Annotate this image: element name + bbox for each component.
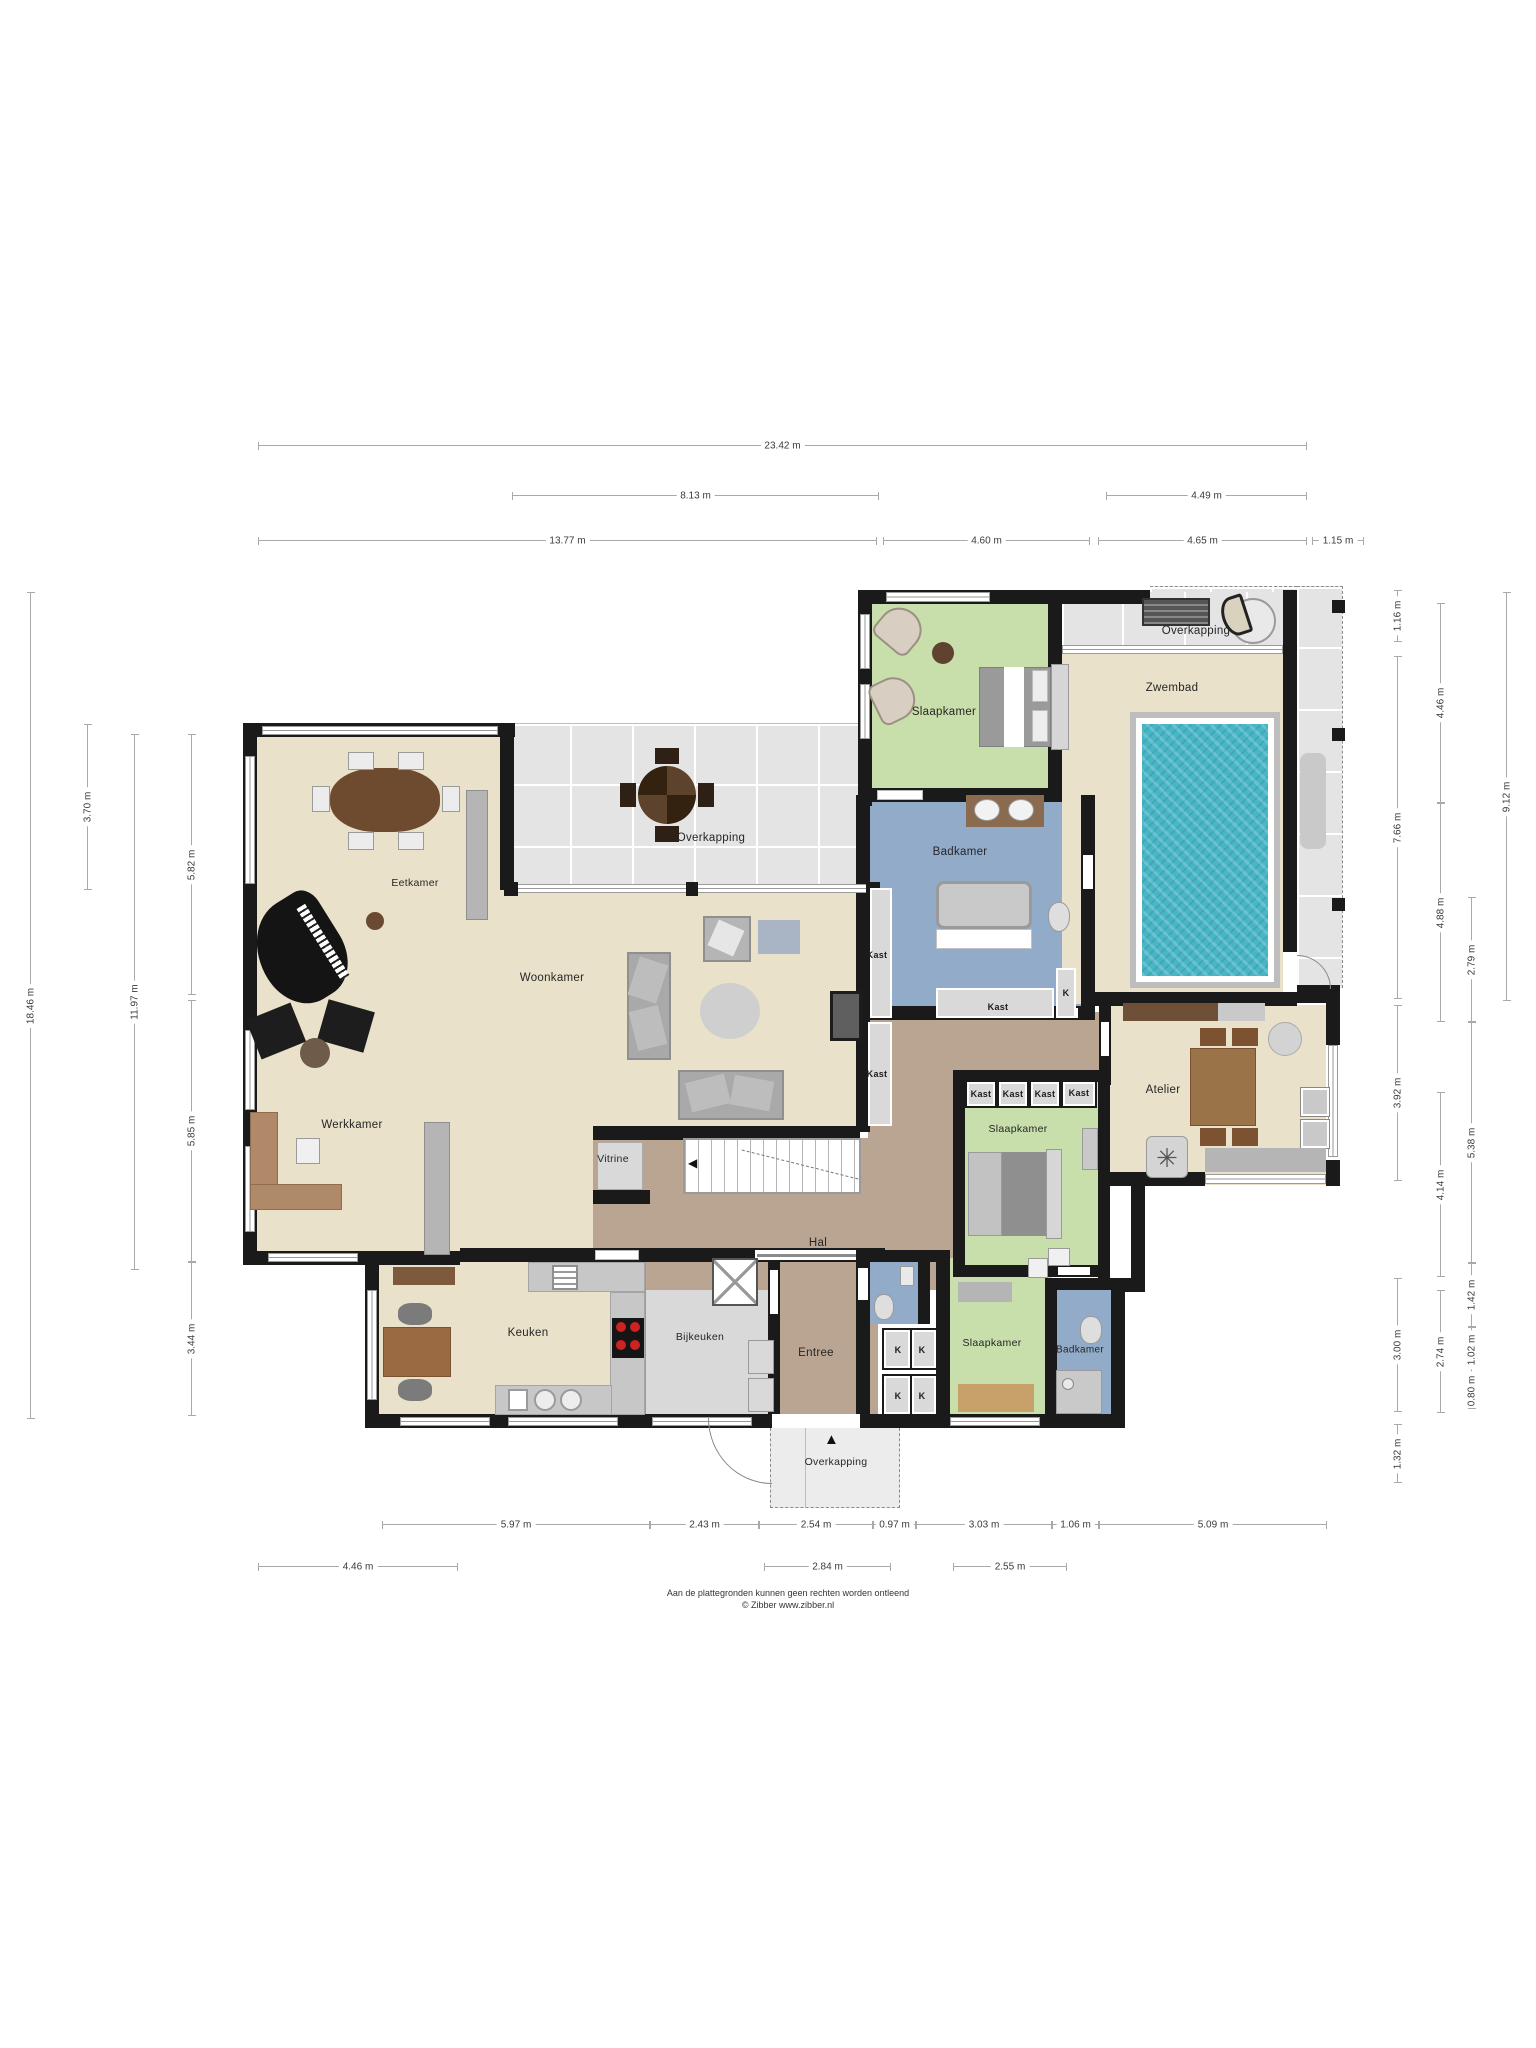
dimension-vertical: 5.85 m — [191, 1000, 192, 1262]
window-keuken-left — [367, 1290, 377, 1400]
pillar-patio-2 — [1332, 728, 1345, 741]
dimension-vertical: 4.14 m — [1440, 1092, 1441, 1277]
room-label: Keuken — [508, 1327, 549, 1339]
wall-poolroom-right — [1283, 590, 1297, 955]
sink-basin — [534, 1389, 556, 1411]
wall-atelier-corner-se — [1326, 1160, 1340, 1186]
kitchen-table — [383, 1327, 451, 1377]
patio-table — [638, 766, 696, 824]
dimension-label: 23.42 m — [760, 441, 804, 452]
wall-badkamer-right — [1081, 795, 1095, 1020]
footer-disclaimer: Aan de plattegronden kunnen geen rechten… — [667, 1588, 909, 1598]
dimension-horizontal: 5.09 m — [1099, 1524, 1327, 1525]
closet-label: Kast — [1069, 1088, 1090, 1098]
window-slaapkamer-left1 — [860, 614, 870, 669]
dimension-horizontal: 4.49 m — [1106, 495, 1307, 496]
atelier-sideboard-wood — [1123, 1003, 1218, 1021]
room-label: Overkapping — [1162, 625, 1231, 637]
fireplace — [830, 991, 862, 1041]
closet-label: K — [895, 1345, 902, 1355]
rug-blue — [758, 920, 800, 954]
dimension-vertical: 1.42 m — [1471, 1263, 1472, 1327]
atelier-chair — [1232, 1128, 1258, 1146]
atelier-chair — [1200, 1028, 1226, 1046]
toilet-wc — [874, 1294, 894, 1320]
room-label: Overkapping — [677, 832, 746, 844]
atelier-chair — [1200, 1128, 1226, 1146]
dimension-label: 0.80 m — [1467, 1372, 1478, 1411]
dimension-label: 7.66 m — [1393, 808, 1404, 847]
dimension-label: 1.02 m — [1467, 1331, 1478, 1370]
room-label: Badkamer — [933, 846, 988, 858]
dimension-vertical: 3.44 m — [191, 1262, 192, 1416]
entrance-arrow: ▲ — [824, 1432, 839, 1447]
window-eetkamer-left — [245, 756, 255, 884]
toilet-top — [1048, 902, 1070, 932]
floor-woonkamer-extension — [455, 1132, 593, 1252]
sliding-door-hal — [757, 1254, 865, 1257]
werkkamer-cabinet — [424, 1122, 450, 1255]
floorplan-canvas: ◀ — [0, 0, 1536, 2048]
burner — [616, 1340, 626, 1350]
wall-badkamerbottom-top — [1045, 1278, 1115, 1290]
post-glass-1 — [504, 882, 518, 896]
door-keuken — [595, 1250, 639, 1260]
dining-chair — [442, 786, 460, 812]
pillar-patio-3 — [1332, 898, 1345, 911]
dimension-horizontal: 0.97 m — [873, 1524, 916, 1525]
atelier-sideboard-grey — [1218, 1003, 1265, 1021]
front-door-arc — [708, 1418, 772, 1484]
dimension-label: 18.46 m — [26, 983, 37, 1027]
dimension-label: 1.32 m — [1393, 1434, 1404, 1473]
patio-chair — [698, 783, 714, 807]
window-poolroom-top — [1062, 645, 1283, 654]
closet-label: K — [919, 1391, 926, 1401]
dimension-label: 5.09 m — [1194, 1520, 1233, 1531]
bed-top-sheet — [1004, 667, 1024, 747]
bijkeuken-appliance — [748, 1340, 774, 1374]
dimension-vertical: 9.12 m — [1506, 592, 1507, 1001]
bed-mid-duvet — [1002, 1152, 1046, 1236]
overkapping-entree-divider — [805, 1428, 806, 1508]
room-label: Eetkamer — [391, 877, 438, 889]
dimension-vertical: 4.46 m — [1440, 603, 1441, 803]
dimension-vertical: 0.80 m — [1471, 1373, 1472, 1409]
door-bijkeuken — [770, 1270, 778, 1314]
kitchen-counter-top — [528, 1262, 645, 1292]
atelier-fridge — [1301, 1120, 1329, 1148]
sink-basin — [560, 1389, 582, 1411]
dimension-horizontal: 4.65 m — [1098, 540, 1307, 541]
kitchen-chair — [398, 1379, 432, 1401]
rug-bottom-bedroom — [958, 1384, 1034, 1412]
post-glass-2 — [686, 882, 698, 896]
room-label: Hal — [809, 1237, 827, 1249]
dimension-vertical: 5.38 m — [1471, 1022, 1472, 1263]
wall-slaapkamermid-right — [1098, 1070, 1110, 1290]
dining-chair — [348, 752, 374, 770]
rug-round — [700, 983, 760, 1039]
burner — [630, 1322, 640, 1332]
closet-label: K — [1063, 988, 1070, 998]
staircase — [683, 1138, 861, 1194]
bedside-table-round — [932, 642, 954, 664]
wall-vitrine-bottom — [593, 1190, 650, 1204]
window-keuken-bottom2 — [508, 1417, 618, 1426]
room-label: Vitrine — [597, 1153, 629, 1165]
dimension-label: 2.84 m — [808, 1562, 847, 1573]
dimension-vertical: 2.79 m — [1471, 897, 1472, 1022]
burner — [616, 1322, 626, 1332]
desk-chair — [296, 1138, 320, 1164]
dishwasher-icon — [508, 1389, 528, 1411]
dimension-label: 4.14 m — [1436, 1165, 1447, 1204]
dining-chair — [398, 832, 424, 850]
patio-chair — [655, 826, 679, 842]
dimension-horizontal: 8.13 m — [512, 495, 879, 496]
dimension-vertical: 7.66 m — [1397, 656, 1398, 999]
dimension-label: 3.70 m — [83, 788, 94, 827]
room-label: Slaapkamer — [912, 706, 976, 718]
dimension-label: 4.46 m — [339, 1562, 378, 1573]
dimension-label: 3.00 m — [1393, 1326, 1404, 1365]
floor-overkapping-topright-dashedtop — [1150, 586, 1297, 592]
room-label: Zwembad — [1146, 682, 1199, 694]
bathtub — [936, 881, 1032, 929]
dimension-vertical: 3.70 m — [87, 724, 88, 890]
dimension-label: 2.74 m — [1436, 1332, 1447, 1371]
wall-atelier-right-top — [1326, 1000, 1340, 1045]
room-label: Atelier — [1146, 1084, 1181, 1096]
dimension-vertical: 1.02 m — [1471, 1327, 1472, 1373]
dimension-label: 2.43 m — [685, 1520, 724, 1531]
dimension-vertical: 5.82 m — [191, 734, 192, 995]
bed-mid-mattress — [968, 1152, 1002, 1236]
dimension-label: 5.97 m — [497, 1520, 536, 1531]
room-label: Overkapping — [805, 1456, 868, 1468]
room-label: Entree — [798, 1347, 834, 1359]
dimension-label: 1.16 m — [1393, 597, 1404, 636]
dimension-horizontal: 23.42 m — [258, 445, 1307, 446]
window-atelier-right — [1328, 1045, 1338, 1157]
atelier-counter — [1205, 1148, 1326, 1172]
bed-mid-headboard — [1046, 1149, 1062, 1239]
dimension-label: 11.97 m — [130, 980, 141, 1023]
dimension-horizontal: 5.97 m — [382, 1524, 650, 1525]
closet-label: Kast — [988, 1002, 1009, 1012]
door-badkamer-top — [1083, 855, 1093, 889]
atelier-fridge — [1301, 1088, 1329, 1116]
closet-label: K — [895, 1391, 902, 1401]
vanity-sink — [974, 799, 1000, 821]
dimension-label: 3.03 m — [965, 1520, 1004, 1531]
dimension-label: 3.92 m — [1393, 1074, 1404, 1113]
footer-copyright: © Zibber www.zibber.nl — [742, 1600, 834, 1610]
door-slaapkamer-tr — [877, 790, 923, 800]
wall-slaapkamermid-left — [953, 1070, 965, 1277]
pool-door-gap — [1283, 952, 1297, 992]
dimension-label: 0.97 m — [875, 1520, 914, 1531]
ac-unit: ✳ — [1146, 1136, 1188, 1178]
shower-bottom-badkamer — [1056, 1370, 1102, 1414]
dimension-horizontal: 1.15 m — [1312, 540, 1364, 541]
bbq-grill — [1142, 598, 1210, 626]
room-label: Bijkeuken — [676, 1331, 724, 1343]
dimension-vertical: 1.32 m — [1397, 1424, 1398, 1483]
pool-water — [1142, 724, 1268, 976]
dimension-vertical: 3.00 m — [1397, 1278, 1398, 1412]
door-atelier — [1101, 1022, 1109, 1056]
lounger-patio — [1300, 753, 1326, 849]
desk-l-horizontal — [250, 1184, 342, 1210]
pillar-patio-1 — [1332, 600, 1345, 613]
dimension-label: 13.77 m — [545, 536, 589, 547]
wall-eetkamer-overkapping — [500, 737, 514, 890]
bijkeuken-appliance — [748, 1378, 774, 1412]
dimension-label: 3.44 m — [187, 1320, 198, 1359]
wall-slaapkamermid-top — [953, 1070, 1105, 1082]
closet-label: Kast — [1003, 1089, 1024, 1099]
dimension-label: 5.82 m — [187, 845, 198, 884]
dimension-label: 9.12 m — [1502, 777, 1513, 816]
room-label: Slaapkamer — [988, 1123, 1047, 1135]
closet-label: Kast — [971, 1089, 992, 1099]
closet-label: Kast — [867, 1069, 888, 1079]
dimension-horizontal: 2.84 m — [764, 1566, 891, 1567]
window-werkkamer-bottom — [268, 1253, 358, 1262]
side-table-round — [300, 1038, 330, 1068]
dimension-label: 2.55 m — [991, 1562, 1030, 1573]
window-atelier-bottom — [1205, 1174, 1326, 1184]
closet-label: Kast — [867, 950, 888, 960]
kitchen-chair — [398, 1303, 432, 1325]
front-door-gap — [772, 1414, 860, 1428]
toilet-bottom-badkamer — [1080, 1316, 1102, 1344]
sideboard-eetkamer — [466, 790, 488, 920]
dimension-label: 1.42 m — [1467, 1276, 1478, 1315]
dimension-horizontal: 4.60 m — [883, 540, 1090, 541]
dimension-label: 1.06 m — [1056, 1520, 1095, 1531]
dimension-label: 5.38 m — [1467, 1123, 1478, 1162]
wall-atelier-left-low — [1131, 1180, 1145, 1292]
dimension-label: 5.85 m — [187, 1112, 198, 1151]
shower-drain — [1062, 1378, 1074, 1390]
floor-overkapping-mid — [509, 723, 880, 890]
door-slaapkamermid — [1058, 1267, 1090, 1275]
burner — [630, 1340, 640, 1350]
window-slaapkamerbottom-bottom — [950, 1417, 1040, 1426]
dimension-label: 2.54 m — [797, 1520, 836, 1531]
bench-mid-bedroom — [1082, 1128, 1098, 1170]
atelier-chair — [1232, 1028, 1258, 1046]
dimension-label: 4.88 m — [1436, 893, 1447, 932]
bed-top-pillow — [1032, 710, 1048, 742]
dimension-horizontal: 13.77 m — [258, 540, 877, 541]
dimension-horizontal: 4.46 m — [258, 1566, 458, 1567]
piano-stool — [366, 912, 384, 930]
dimension-vertical: 18.46 m — [30, 592, 31, 1419]
closet-label: Kast — [1035, 1089, 1056, 1099]
dining-chair — [312, 786, 330, 812]
dimension-label: 4.65 m — [1183, 536, 1222, 547]
stairs-direction-arrow: ◀ — [688, 1156, 702, 1170]
nightstand-mid — [1048, 1248, 1070, 1266]
vanity-sink — [1008, 799, 1034, 821]
atelier-round-table — [1268, 1022, 1302, 1056]
patio-chair — [620, 783, 636, 807]
dining-table — [330, 768, 440, 832]
bed-top-pillow — [1032, 670, 1048, 702]
wall-slaapkamerbottom-left — [936, 1258, 950, 1420]
dimension-horizontal: 3.03 m — [916, 1524, 1052, 1525]
oven-icon — [552, 1265, 578, 1290]
room-label: Slaapkamer — [962, 1337, 1021, 1349]
dimension-horizontal: 2.54 m — [759, 1524, 873, 1525]
dimension-label: 2.79 m — [1467, 940, 1478, 979]
rug-bottom-bedroom-top — [958, 1282, 1012, 1302]
atelier-table — [1190, 1048, 1256, 1126]
wall-wc-right — [918, 1256, 930, 1324]
room-label: Woonkamer — [520, 972, 584, 984]
dimension-label: 4.46 m — [1436, 684, 1447, 723]
vitrine-cabinet — [597, 1142, 643, 1190]
dimension-horizontal: 1.06 m — [1052, 1524, 1099, 1525]
chair-bottom-bedroom — [1028, 1258, 1048, 1278]
window-slaapkamer-top — [886, 592, 990, 602]
dimension-vertical: 11.97 m — [134, 734, 135, 1270]
closet-label: K — [919, 1345, 926, 1355]
patio-chair — [655, 748, 679, 764]
dining-chair — [398, 752, 424, 770]
bed-top-headboard — [1051, 664, 1069, 750]
dimension-vertical: 1.16 m — [1397, 590, 1398, 642]
bathtub-shelf — [936, 929, 1032, 949]
door-wc — [858, 1268, 868, 1300]
dimension-label: 4.60 m — [967, 536, 1006, 547]
dimension-label: 4.49 m — [1187, 491, 1226, 502]
dimension-vertical: 4.88 m — [1440, 803, 1441, 1022]
dimension-label: 8.13 m — [676, 491, 715, 502]
wall-bottomright-vert — [1111, 1278, 1125, 1428]
kitchen-sideboard — [393, 1267, 455, 1285]
window-werkkamer-left1 — [245, 1030, 255, 1110]
room-label: Badkamer — [1056, 1345, 1104, 1356]
dimension-horizontal: 2.55 m — [953, 1566, 1067, 1567]
room-label: Werkkamer — [321, 1119, 382, 1131]
shaft-box — [712, 1258, 758, 1306]
dimension-horizontal: 2.43 m — [650, 1524, 759, 1525]
window-keuken-bottom1 — [400, 1417, 490, 1426]
window-eetkamer-top — [262, 726, 498, 735]
dimension-label: 1.15 m — [1319, 536, 1358, 547]
dimension-vertical: 2.74 m — [1440, 1290, 1441, 1413]
sink-wc — [900, 1266, 914, 1286]
dimension-vertical: 3.92 m — [1397, 1005, 1398, 1181]
dining-chair — [348, 832, 374, 850]
